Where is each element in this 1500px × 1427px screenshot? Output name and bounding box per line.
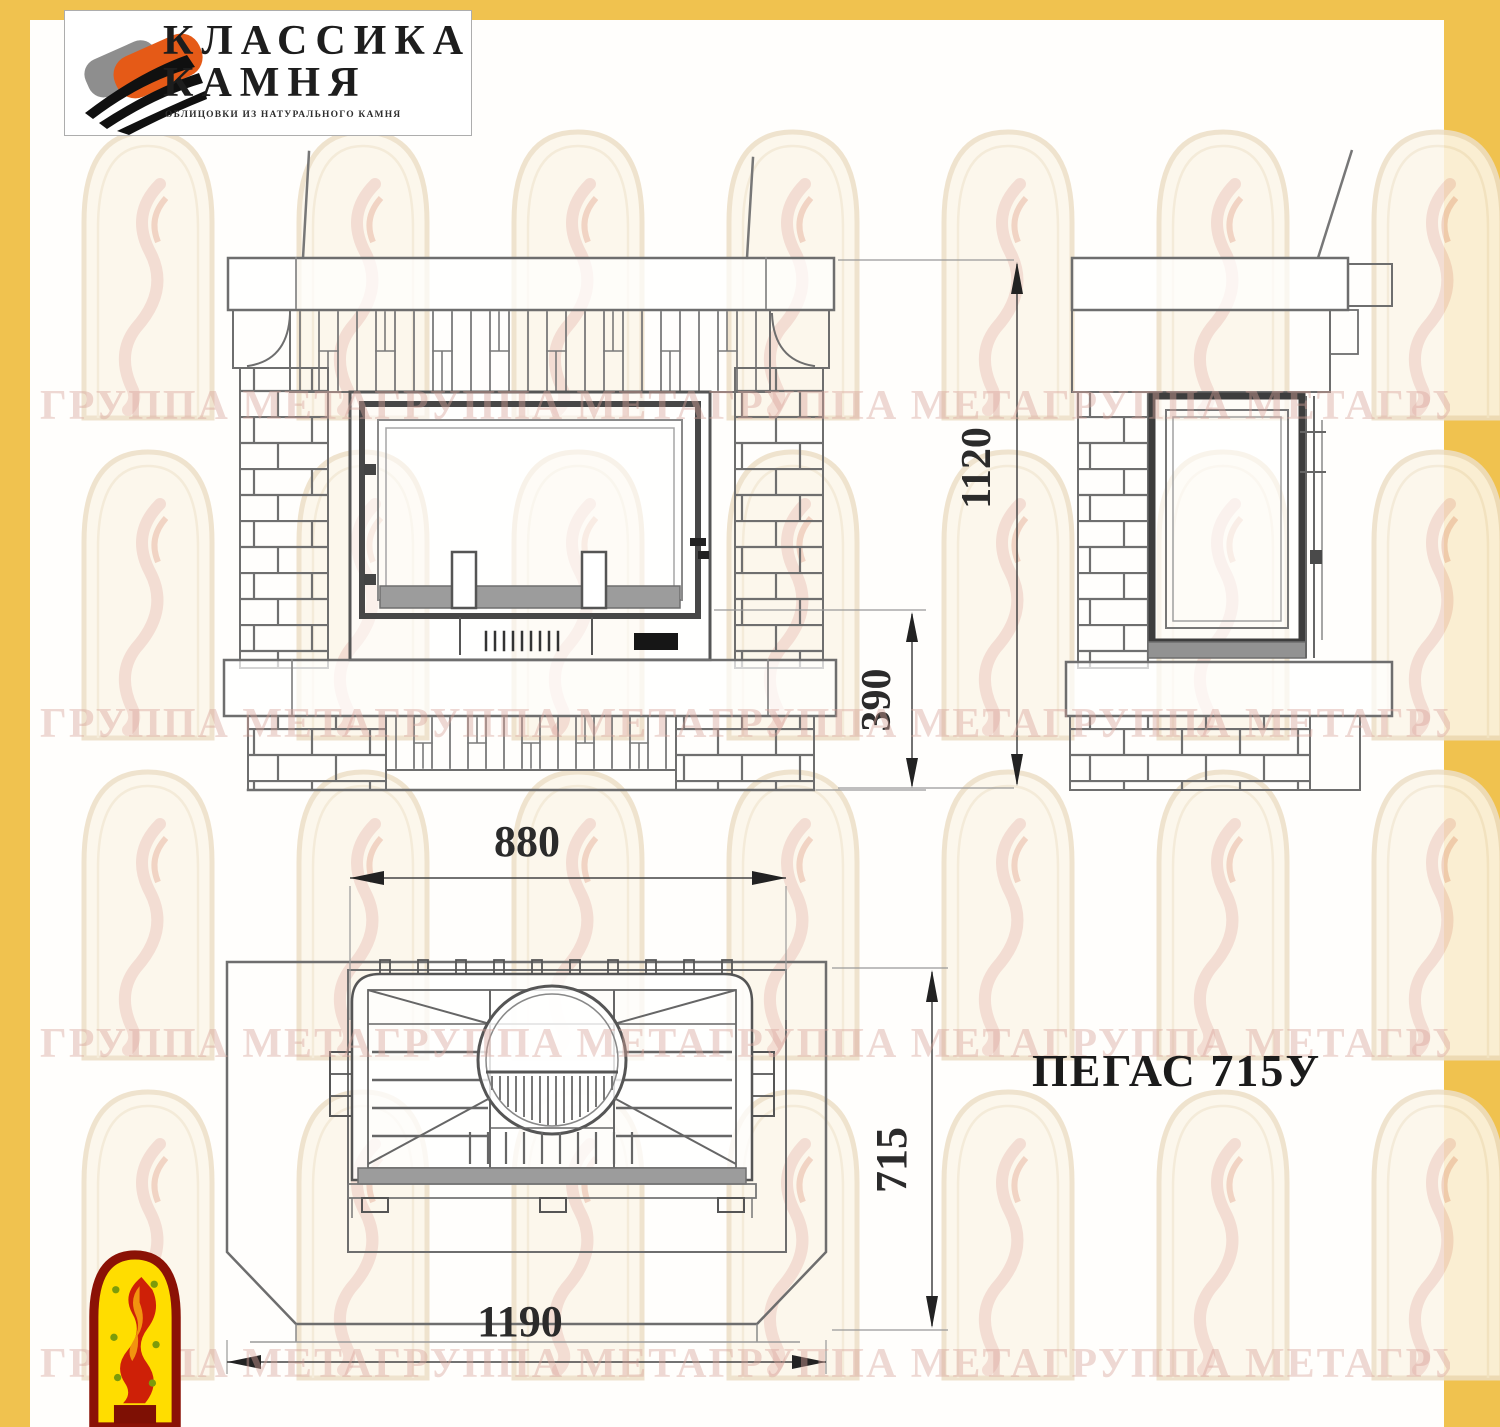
model-name-label: ПЕГАС 715У [1032, 1044, 1321, 1097]
dim-label-1120: 1120 [954, 427, 1000, 509]
side-glass-window [1152, 396, 1302, 642]
scanned-catalog-page: 1120 390 880 1190 [0, 0, 1500, 1427]
company-logo: КЛАССИКА КАМНЯ ОБЛИЦОВКИ ИЗ НАТУРАЛЬНОГО… [64, 10, 472, 136]
door-latch [690, 538, 706, 546]
brand-badge [634, 633, 678, 650]
side-handle [1310, 550, 1322, 564]
watermark-text-row: ГРУППА МЕТАГРУППА МЕТАГРУППА МЕТАГРУППА … [40, 1340, 1450, 1386]
dim-label-880: 880 [494, 817, 560, 866]
plan-view [227, 960, 826, 1342]
door-hinge-bottom [364, 574, 376, 585]
side-view [1066, 150, 1392, 790]
door-hinge-top [364, 464, 376, 475]
metagruppa-emblem [82, 1244, 188, 1427]
dim-label-715: 715 [867, 1127, 916, 1193]
front-view [224, 152, 836, 790]
logo-title-line2: КАМНЯ [163, 61, 366, 105]
dim-label-1190: 1190 [477, 1297, 563, 1346]
logo-title-line1: КЛАССИКА [163, 19, 471, 63]
logo-subtitle: ОБЛИЦОВКИ ИЗ НАТУРАЛЬНОГО КАМНЯ [165, 110, 401, 120]
watermark-text-row: ГРУППА МЕТАГРУППА МЕТАГРУППА МЕТАГРУППА … [40, 700, 1450, 746]
watermark-text-row: ГРУППА МЕТАГРУППА МЕТАГРУППА МЕТАГРУППА … [40, 382, 1450, 428]
